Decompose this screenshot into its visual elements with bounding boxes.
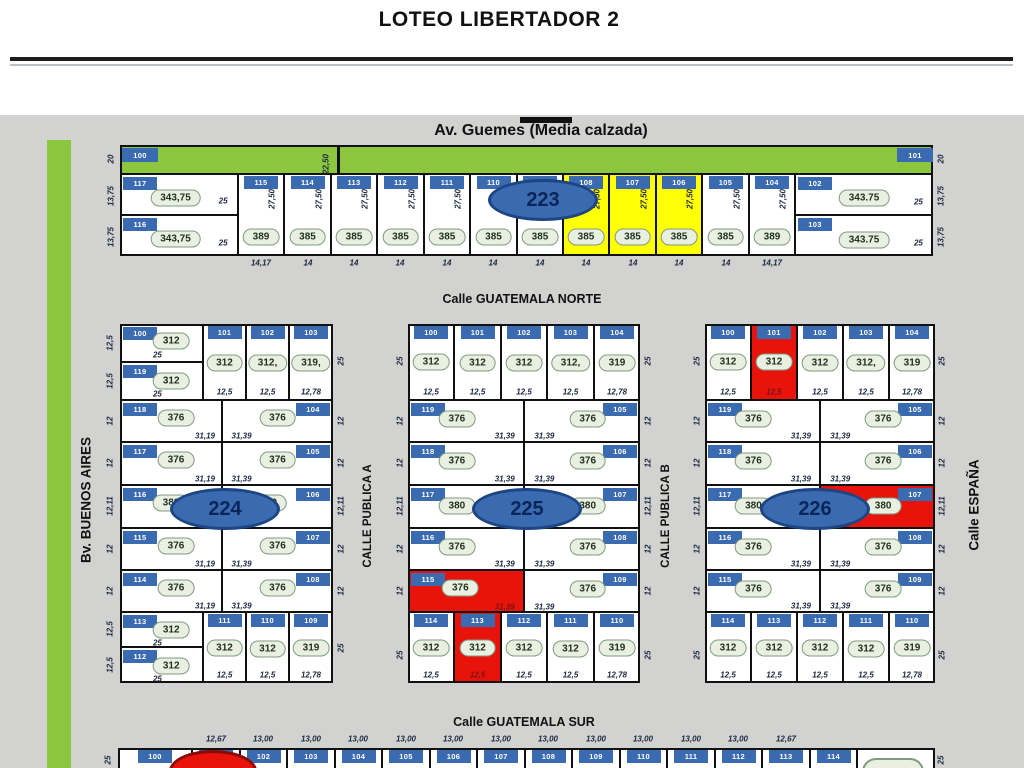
dim-label: 12,5 [106, 657, 115, 673]
lot-226-108: 10837631,39 [820, 528, 935, 570]
dim-label: 25 [693, 357, 702, 366]
lot-number: 112 [123, 650, 157, 663]
lot-number: 107 [603, 488, 637, 501]
area-label: 385 [475, 229, 512, 246]
dim-label: 12,67 [206, 735, 226, 744]
lot-number: 101 [461, 326, 495, 339]
lot-number: 103 [294, 750, 328, 763]
lot-number: 113 [461, 614, 495, 627]
lot-224-111: 11131212,5 [203, 612, 246, 683]
lot-225-110: 11031912,78 [594, 612, 640, 683]
area-label: 385 [707, 229, 744, 246]
dim-label: 12,11 [396, 496, 405, 515]
lot-bottom-104: 104 [335, 748, 382, 768]
lot-224-107: 10737631,39 [222, 528, 333, 570]
dim-label: 25 [153, 674, 162, 683]
area-label: 376 [569, 581, 606, 598]
dim-label: 25 [219, 238, 228, 247]
dim-label: 27,50 [268, 189, 277, 209]
dim-label: 12,78 [902, 671, 922, 680]
lot-number: 107 [296, 531, 330, 544]
lot-225-106: 10637631,39 [524, 442, 640, 485]
dim-label: 12,5 [858, 671, 874, 680]
area-label: 376 [735, 539, 772, 556]
dim-label: 12,5 [812, 387, 828, 396]
dim-label: 31,39 [495, 432, 515, 441]
lot-number: 100 [711, 326, 745, 339]
lot-226-104: 10431912,78 [889, 324, 935, 400]
dim-label: 25 [644, 651, 653, 660]
dim-label: 12 [644, 459, 653, 468]
dim-label: 12 [644, 417, 653, 426]
lot-223-113: 11338527,50 [331, 174, 377, 256]
subdivision-plan: LOTEO LIBERTADOR 2 Av. Guemes (Media cal… [0, 0, 1024, 768]
dim-label: 12,5 [720, 671, 736, 680]
dim-label: 12,78 [607, 671, 627, 680]
lot-number: 114 [711, 614, 745, 627]
area-label: 312 [756, 354, 793, 371]
area-label: 312 [153, 333, 190, 350]
lot-number: 102 [803, 326, 837, 339]
lot-number: 105 [709, 176, 743, 189]
area-label: 376 [569, 539, 606, 556]
area-label: 312 [206, 639, 243, 656]
lot-number: 114 [414, 614, 448, 627]
lot-number: 107 [616, 176, 650, 189]
dim-label: 12 [938, 417, 947, 426]
lot-223-114: 11438527,50 [284, 174, 331, 256]
dim-label: 12,5 [516, 671, 532, 680]
dim-label: 12,5 [217, 387, 233, 396]
lot-224-110: 11031212,5 [246, 612, 289, 683]
lot-number: 100 [414, 326, 448, 339]
lot-223-117: 117343,7525 [120, 174, 238, 215]
block-oval-225: 225 [472, 488, 582, 530]
dim-label: 13,75 [937, 227, 946, 247]
dim-label: 12,78 [301, 671, 321, 680]
dim-label: 13,00 [728, 735, 748, 744]
dim-label: 31,39 [830, 475, 850, 484]
area-label: 319, [291, 355, 330, 372]
lot-225-116: 11637631,39 [408, 528, 524, 570]
area-label: 376 [439, 411, 476, 428]
lot-number: 110 [627, 750, 661, 763]
dim-label: 13,00 [491, 735, 511, 744]
area-label: 376 [865, 581, 902, 598]
lot-224-115: 11537631,19 [120, 528, 222, 570]
dim-label: 14 [582, 259, 591, 268]
lot-number: 107 [898, 488, 932, 501]
lot-224-104: 10437631,39 [222, 400, 333, 442]
lot-number: 112 [803, 614, 837, 627]
lot-number: 114 [817, 750, 851, 763]
lot-number: 111 [554, 614, 588, 627]
lot-number: 110 [600, 614, 634, 627]
dim-label: 14 [722, 259, 731, 268]
lot-number: 104 [600, 326, 634, 339]
dim-label: 12,11 [644, 496, 653, 515]
lot-bottom-108: 108 [525, 748, 572, 768]
area-label: 312 [506, 639, 543, 656]
dim-label: 12,78 [301, 387, 321, 396]
area-label: 376 [158, 537, 195, 554]
lot-226-119: 11937631,39 [705, 400, 820, 442]
dim-label: 25 [396, 651, 405, 660]
lot-number: 109 [603, 573, 637, 586]
dim-label: 14 [675, 259, 684, 268]
dim-label: 31,39 [791, 560, 811, 569]
area-label: 385 [429, 229, 466, 246]
lot-225-112: 11231212,5 [501, 612, 547, 683]
area-label: 376 [158, 409, 195, 426]
dim-label: 27,50 [315, 189, 324, 209]
dim-label: 13,00 [586, 735, 606, 744]
dim-label: 12,11 [938, 496, 947, 515]
lot-number: 106 [296, 488, 330, 501]
dim-label: 25 [337, 644, 346, 653]
dim-label: 22,50 [322, 154, 331, 174]
area-label: 312 [756, 639, 793, 656]
lot-number: 104 [342, 750, 376, 763]
dim-label: 12,5 [563, 671, 579, 680]
area-label: 319 [894, 639, 931, 656]
dim-label: 31,39 [534, 603, 554, 612]
lot-number: 114 [291, 176, 325, 189]
lot-226-115: 11537631,39 [705, 570, 820, 612]
lot-number: 101 [757, 326, 791, 339]
area-label: 376 [865, 411, 902, 428]
lot-number: 108 [296, 573, 330, 586]
lot-224-108: 10837631,39 [222, 570, 333, 612]
dim-label: 12,5 [766, 671, 782, 680]
lot-226-112: 11231212,5 [797, 612, 843, 683]
lot-number: 108 [532, 750, 566, 763]
lot-number: 115 [123, 531, 157, 544]
dim-label: 31,39 [534, 432, 554, 441]
lot-224-101: 10131212,5 [203, 324, 246, 400]
dim-label: 12,5 [470, 671, 486, 680]
dim-label: 25 [396, 357, 405, 366]
dim-label: 12,5 [563, 387, 579, 396]
lot-number: 112 [384, 176, 418, 189]
lot-223-112: 11238527,50 [377, 174, 424, 256]
lot-225-108: 10837631,39 [524, 528, 640, 570]
lot-number: 105 [389, 750, 423, 763]
lot-number: 117 [123, 177, 157, 190]
area-label: 312 [153, 657, 190, 674]
dim-label: 12 [106, 587, 115, 596]
area-label: 376 [439, 453, 476, 470]
dim-label: 31,39 [232, 602, 252, 611]
lot-223-strip [338, 145, 933, 174]
dim-label: 14 [536, 259, 545, 268]
lot-number: 105 [898, 403, 932, 416]
dim-label: 31,19 [195, 560, 215, 569]
lot-224-105: 10537631,39 [222, 442, 333, 485]
lot-number: 109 [579, 750, 613, 763]
area-label: 312 [249, 640, 286, 657]
dim-label: 25 [153, 638, 162, 647]
lot-226-106: 10637631,39 [820, 442, 935, 485]
dim-label: 13,00 [253, 735, 273, 744]
title-divider [10, 57, 1013, 61]
dim-label: 12,78 [607, 387, 627, 396]
partial-area-oval [862, 758, 924, 768]
lot-number: 115 [411, 573, 445, 586]
dim-label: 12 [396, 545, 405, 554]
dim-label: 12,5 [766, 387, 782, 396]
dim-label: 14,17 [251, 259, 271, 268]
lot-225-100: 10031212,5 [408, 324, 454, 400]
area-label: 385 [568, 229, 605, 246]
dim-label: 12,5 [260, 387, 276, 396]
dim-label: 20 [937, 155, 946, 164]
lot-number: 108 [603, 531, 637, 544]
area-label: 376 [735, 411, 772, 428]
area-label: 312 [413, 639, 450, 656]
dim-label: 25 [937, 756, 946, 765]
lot-225-102: 10231212,5 [501, 324, 547, 400]
street-label-bv-buenos-aires: Bv. BUENOS AIRES [79, 437, 94, 563]
lot-number: 109 [294, 614, 328, 627]
dim-label: 25 [219, 196, 228, 205]
lot-226-100: 10031212,5 [705, 324, 751, 400]
left-green-strip [47, 140, 71, 768]
area-label: 376 [259, 452, 296, 469]
top-right-bar [520, 117, 572, 123]
lot-223-111: 11138527,50 [424, 174, 470, 256]
area-label: 319 [293, 639, 330, 656]
dim-label: 27,50 [408, 189, 417, 209]
dim-label: 25 [914, 239, 923, 248]
dim-label: 27,50 [454, 189, 463, 209]
title-divider-shadow [10, 64, 1013, 66]
lot-number: 112 [722, 750, 756, 763]
dim-label: 14 [396, 259, 405, 268]
dim-label: 12 [337, 459, 346, 468]
dim-label: 25 [337, 357, 346, 366]
area-label: 389 [243, 229, 280, 246]
dim-label: 31,39 [232, 560, 252, 569]
dim-label: 12 [396, 587, 405, 596]
dim-label: 25 [644, 357, 653, 366]
lot-number: 106 [898, 445, 932, 458]
area-label: 312 [153, 373, 190, 390]
lot-number: 109 [898, 573, 932, 586]
dim-label: 27,50 [361, 189, 370, 209]
dim-label: 31,19 [195, 432, 215, 441]
lot-225-104: 10431912,78 [594, 324, 640, 400]
area-label: 385 [522, 229, 559, 246]
lot-number: 116 [123, 488, 157, 501]
dim-label: 31,39 [495, 560, 515, 569]
dim-label: 31,19 [195, 602, 215, 611]
lot-number: 106 [662, 176, 696, 189]
area-label: 343,75 [150, 231, 201, 248]
lot-number: 115 [244, 176, 278, 189]
dim-label: 12,67 [776, 735, 796, 744]
block-oval-226: 226 [760, 488, 870, 530]
lot-224-102: 102312,12,5 [246, 324, 289, 400]
lot-number: 103 [294, 326, 328, 339]
dim-label: 12,5 [260, 671, 276, 680]
dim-label: 31,39 [830, 560, 850, 569]
dim-label: 12,5 [217, 671, 233, 680]
dim-label: 13,00 [301, 735, 321, 744]
lot-number: 102 [798, 177, 832, 190]
lot-number: 110 [895, 614, 929, 627]
dim-label: 27,50 [779, 189, 788, 209]
dim-label: 12 [693, 545, 702, 554]
area-label: 312 [459, 355, 496, 372]
dim-label: 12 [644, 545, 653, 554]
dim-label: 31,39 [830, 432, 850, 441]
area-label: 343.75 [839, 232, 890, 249]
dim-label: 31,39 [232, 432, 252, 441]
lot-223-107: 10738527,50 [609, 174, 656, 256]
lot-number: 114 [123, 573, 157, 586]
area-label: 343.75 [839, 190, 890, 207]
dim-label: 13,00 [396, 735, 416, 744]
lot-number: 116 [123, 218, 157, 231]
lot-224-109: 10931912,78 [289, 612, 333, 683]
lot-226-116: 11637631,39 [705, 528, 820, 570]
lot-223-116: 116343,7525 [120, 215, 238, 256]
lot-224-100: 10031225 [120, 324, 203, 362]
dim-label: 31,39 [495, 475, 515, 484]
dim-label: 27,50 [640, 189, 649, 209]
lot-bottom-107: 107 [477, 748, 525, 768]
lot-223-103: 103343.7525 [795, 215, 933, 256]
lot-225-109: 10937631,39 [524, 570, 640, 612]
dim-label: 25 [153, 351, 162, 360]
dim-label: 12 [396, 417, 405, 426]
lot-number: 102 [507, 326, 541, 339]
dim-label: 12,11 [106, 496, 115, 515]
area-label: 312 [848, 640, 885, 657]
dim-label: 12,5 [423, 387, 439, 396]
lot-225-103: 103312,12,5 [547, 324, 594, 400]
block-oval-223: 223 [488, 179, 598, 221]
dim-label: 13,00 [681, 735, 701, 744]
lot-226-111: 11131212,5 [843, 612, 889, 683]
lot-bottom-106: 106 [430, 748, 477, 768]
dim-label: 13,00 [538, 735, 558, 744]
area-label: 312 [206, 355, 243, 372]
area-label: 376 [158, 452, 195, 469]
lot-number: 108 [898, 531, 932, 544]
lot-bottom-111: 111 [667, 748, 715, 768]
dim-label: 31,19 [195, 475, 215, 484]
dim-label: 12,5 [106, 335, 115, 351]
dim-label: 13,75 [107, 186, 116, 206]
dim-label: 31,39 [232, 475, 252, 484]
area-label: 312, [551, 355, 590, 372]
dim-label: 31,39 [495, 603, 515, 612]
dim-label: 25 [938, 651, 947, 660]
area-label: 385 [614, 229, 651, 246]
dim-label: 12 [106, 545, 115, 554]
lot-number: 100 [122, 148, 158, 162]
area-label: 376 [259, 409, 296, 426]
block-oval-224: 224 [170, 488, 280, 530]
lot-224-114: 11437631,19 [120, 570, 222, 612]
area-label: 376 [439, 539, 476, 556]
dim-label: 12,5 [423, 671, 439, 680]
dim-label: 12 [106, 459, 115, 468]
dim-label: 12 [337, 587, 346, 596]
street-label-calle-publica-b: CALLE PUBLICA B [660, 464, 672, 568]
lot-bottom-113: 113 [762, 748, 810, 768]
lot-number: 103 [798, 218, 832, 231]
lot-number: 111 [208, 614, 242, 627]
area-label: 376 [735, 453, 772, 470]
lot-223-115: 11538927,50 [238, 174, 284, 256]
area-label: 385 [661, 229, 698, 246]
lot-number: 101 [208, 326, 242, 339]
area-label: 385 [382, 229, 419, 246]
lot-number: 113 [123, 615, 157, 628]
green-strip-divider [338, 145, 340, 174]
dim-label: 12 [938, 587, 947, 596]
dim-label: 13,75 [937, 186, 946, 206]
lot-226-109: 10937631,39 [820, 570, 935, 612]
lot-224-113: 11331225 [120, 612, 203, 647]
area-label: 312 [413, 354, 450, 371]
area-label: 319 [894, 355, 931, 372]
dim-label: 25 [938, 357, 947, 366]
lot-number: 101 [897, 148, 933, 162]
dim-label: 31,39 [534, 475, 554, 484]
lot-number: 107 [484, 750, 518, 763]
street-label-av-guemes: Av. Guemes (Media calzada) [434, 122, 647, 140]
dim-label: 13,00 [633, 735, 653, 744]
lot-bottom-105: 105 [382, 748, 430, 768]
lot-225-105: 10537631,39 [524, 400, 640, 442]
dim-label: 12,5 [858, 387, 874, 396]
lot-number: 105 [296, 445, 330, 458]
area-label: 312 [459, 639, 496, 656]
lot-number: 117 [123, 445, 157, 458]
lot-number: 118 [123, 403, 157, 416]
street-label-calle-guatemala-sur: Calle GUATEMALA SUR [453, 715, 595, 729]
area-label: 376 [259, 537, 296, 554]
lot-225-119: 11937631,39 [408, 400, 524, 442]
lot-224-103: 103319,12,78 [289, 324, 333, 400]
lot-number: 111 [674, 750, 708, 763]
lot-number: 106 [437, 750, 471, 763]
area-label: 343,75 [150, 189, 201, 206]
area-label: 376 [442, 579, 479, 596]
area-label: 380 [439, 497, 476, 514]
area-label: 385 [289, 229, 326, 246]
lot-225-118: 11837631,39 [408, 442, 524, 485]
area-label: 376 [158, 579, 195, 596]
dim-label: 12,5 [470, 387, 486, 396]
dim-label: 12,78 [902, 387, 922, 396]
street-label-calle-publica-a: CALLE PUBLICA A [362, 464, 374, 567]
street-label-calle-guatemala-norte: Calle GUATEMALA NORTE [442, 292, 601, 306]
lot-226-102: 10231212,5 [797, 324, 843, 400]
area-label: 380 [865, 497, 902, 514]
lot-bottom-110: 110 [620, 748, 667, 768]
lot-226-114: 11431212,5 [705, 612, 751, 683]
dim-label: 14 [304, 259, 313, 268]
lot-number: 113 [337, 176, 371, 189]
lot-number: 113 [769, 750, 803, 763]
area-label: 312 [802, 355, 839, 372]
lot-bottom-114: 114 [810, 748, 857, 768]
